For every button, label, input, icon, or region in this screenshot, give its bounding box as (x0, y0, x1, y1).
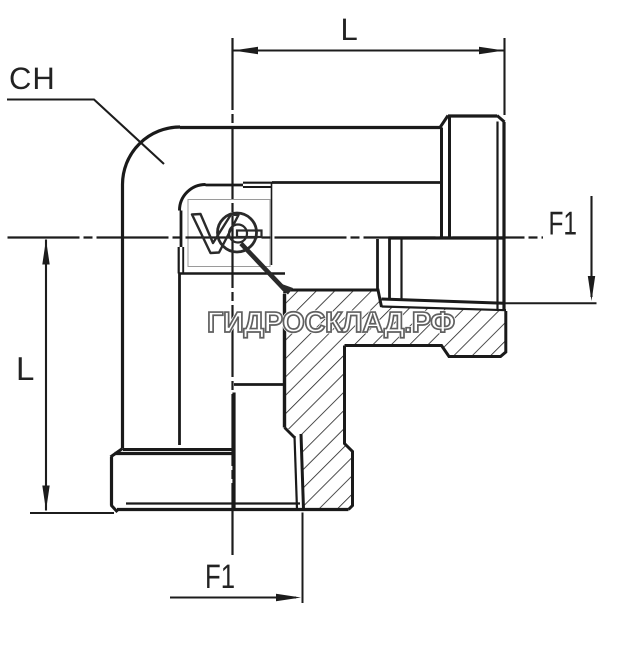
svg-text:F1: F1 (549, 205, 578, 242)
svg-text:ГИДРОСКЛАД.РФ: ГИДРОСКЛАД.РФ (207, 307, 455, 339)
svg-text:L: L (341, 12, 358, 47)
svg-text:F1: F1 (205, 558, 235, 596)
svg-text:L: L (16, 350, 34, 387)
svg-text:CH: CH (9, 61, 56, 96)
